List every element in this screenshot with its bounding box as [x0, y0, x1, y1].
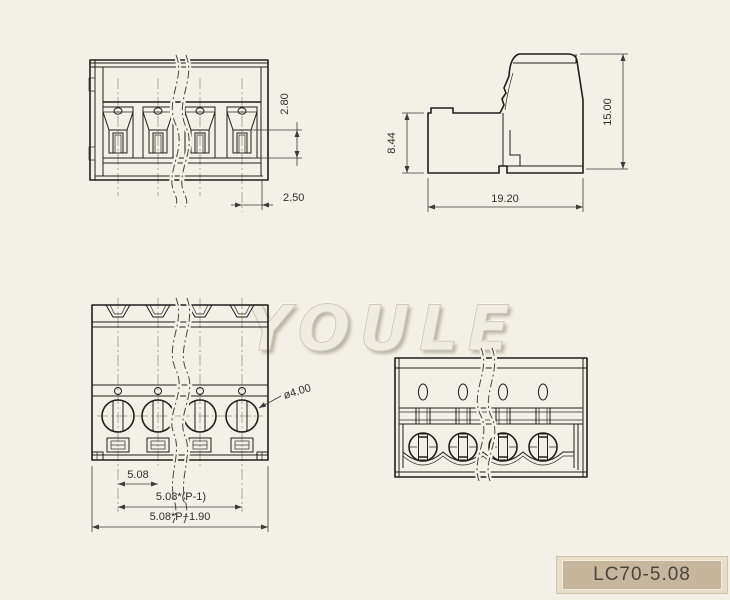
top-view: 5.08 5.08*(P-1) 5.08*P+1.90 ø4.00 — [92, 298, 313, 532]
wire-clamps — [107, 438, 253, 452]
dim-text-8-44: 8.44 — [386, 132, 398, 153]
part-number: LC70-5.08 — [562, 560, 722, 590]
dim-text-2-80: 2.80 — [279, 93, 291, 114]
dimension-15-00: 15.00 — [580, 54, 628, 169]
dim-text-2-50: 2.50 — [283, 192, 304, 204]
dim-text-19-20: 19.20 — [491, 193, 519, 205]
dimension-2-80: 2.80 — [252, 93, 302, 166]
side-view: 8.44 15.00 19.20 — [386, 54, 628, 212]
plug-holes — [419, 384, 548, 400]
title-block: LC70-5.08 — [556, 556, 728, 594]
drawing-sheet: YOULE — [0, 0, 730, 600]
dimension-span: 5.08*(P-1) — [118, 491, 242, 510]
top-view-centerlines — [97, 298, 263, 512]
dim-text-overall: 5.08*P+1.90 — [150, 511, 211, 523]
dimension-pitch: 5.08 — [118, 469, 158, 487]
dim-text-15-00: 15.00 — [602, 98, 614, 126]
technical-drawing: 2.80 2.50 8.44 — [0, 0, 730, 600]
dim-text-span: 5.08*(P-1) — [156, 491, 206, 503]
dim-text-screw-diameter: ø4.00 — [282, 382, 312, 402]
break-line — [172, 298, 190, 523]
dimension-screw-diameter: ø4.00 — [259, 382, 313, 408]
dimension-19-20: 19.20 — [428, 178, 583, 212]
dim-text-pitch: 5.08 — [127, 469, 148, 481]
front-view: 2.80 2.50 — [89, 55, 304, 212]
plug-view — [395, 348, 587, 481]
dimension-8-44: 8.44 — [386, 113, 424, 173]
break-line — [172, 55, 189, 207]
